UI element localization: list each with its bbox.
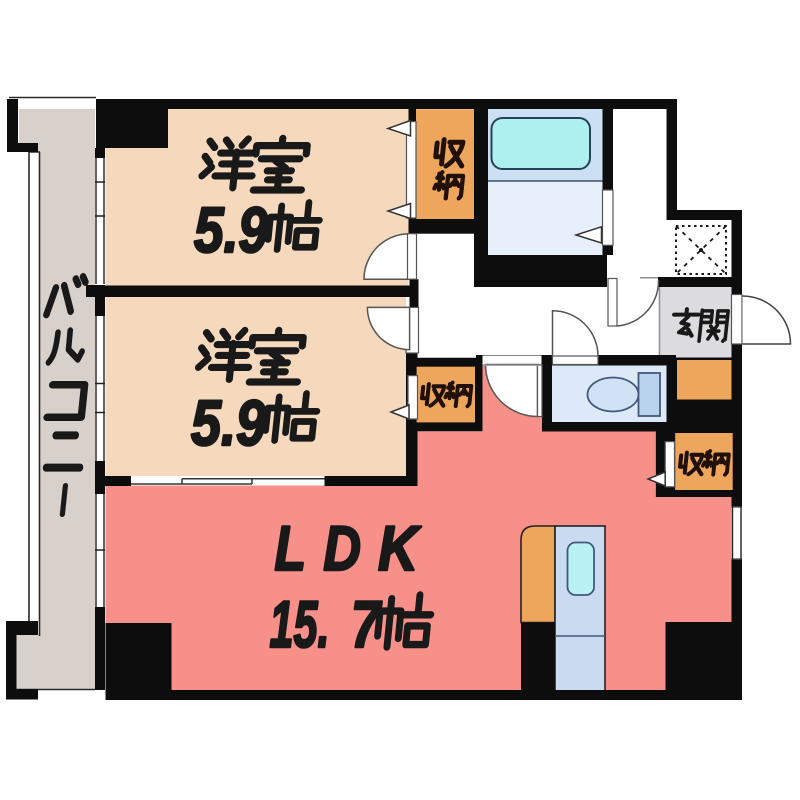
svg-text:L: L (275, 514, 307, 584)
svg-text:15.: 15. (270, 587, 330, 661)
svg-text:5.9: 5.9 (194, 194, 268, 266)
svg-text:D: D (323, 514, 361, 584)
svg-text:K: K (378, 514, 422, 584)
svg-text:5.9: 5.9 (191, 387, 266, 459)
